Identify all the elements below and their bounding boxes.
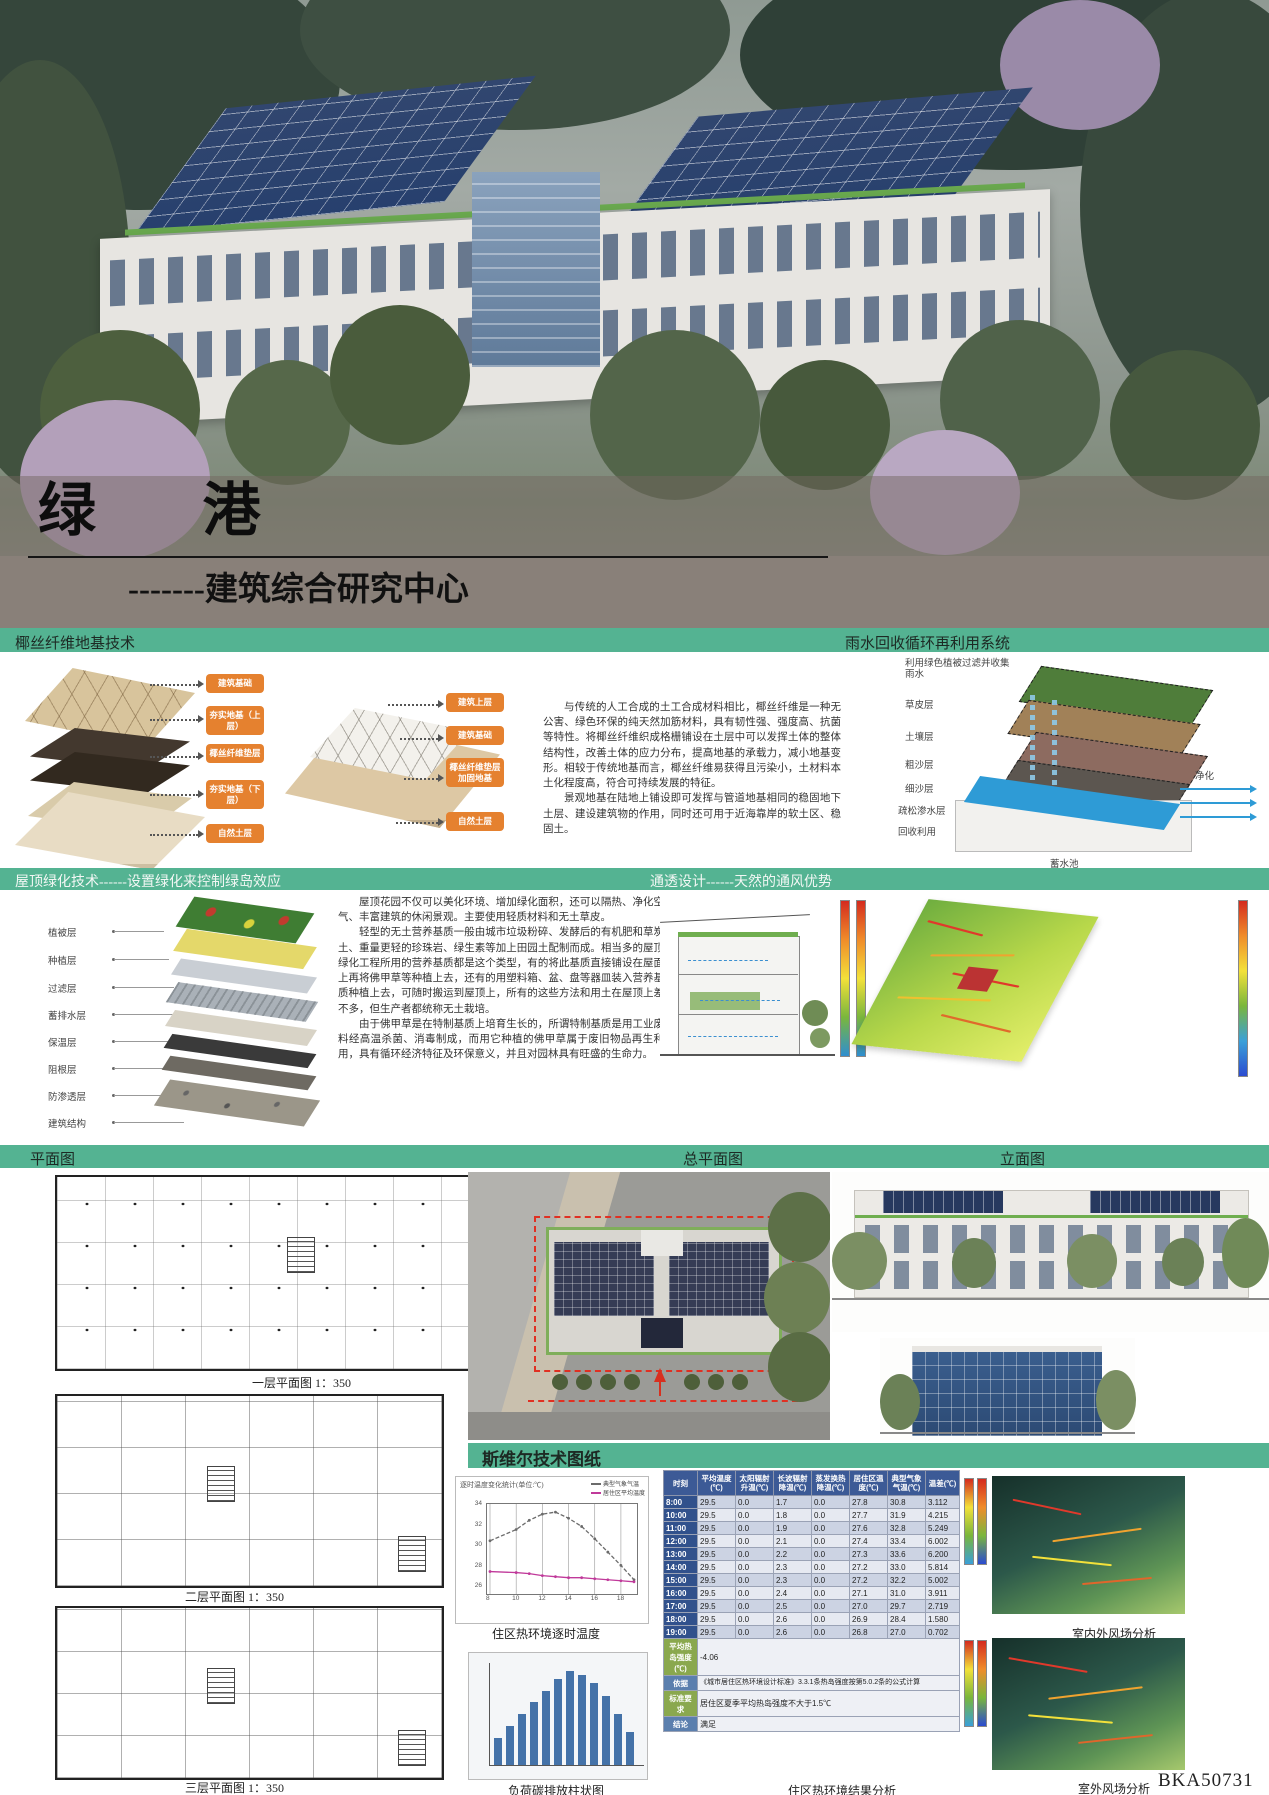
thermal-line-chart-plot [486, 1503, 638, 1595]
leader-line [114, 959, 169, 960]
value-cell: 33.0 [888, 1561, 926, 1574]
summary-value-cell: 《城市居住区热环境设计标准》3.3.1条热岛强度按第5.0.2条的公式计算 [698, 1676, 960, 1691]
value-cell: 2.4 [774, 1587, 812, 1600]
layer-label: 夯实地基（上层） [206, 706, 264, 735]
bar [626, 1732, 634, 1765]
dotted-arrow-icon [396, 822, 438, 824]
flow-arrow [1180, 802, 1250, 804]
column-header: 时刻 [664, 1471, 698, 1496]
airflow-arrow [688, 960, 768, 961]
tree [768, 1192, 830, 1262]
value-cell: 2.1 [774, 1535, 812, 1548]
time-cell: 17:00 [664, 1600, 698, 1613]
value-cell: 31.0 [888, 1587, 926, 1600]
dotted-arrow-icon [438, 734, 444, 742]
table-body: 8:0029.50.01.70.027.830.83.11210:0029.50… [664, 1496, 960, 1732]
roof-paragraphs: 屋顶花园不仅可以美化环境、增加绿化面积，还可以隔热、净化空气、丰富建筑的休闲景观… [338, 895, 664, 1062]
summary-label-cell: 结论 [664, 1717, 698, 1732]
layer-label: 建筑基础 [206, 674, 264, 693]
band-rainwater-title: 雨水回收循环再利用系统 [845, 632, 1010, 653]
x-tick-label: 16 [591, 1595, 598, 1602]
time-cell: 11:00 [664, 1522, 698, 1535]
thermal-table: 时刻平均温度(℃)太阳辐射升温(℃)长波辐射降温(℃)蒸发换热降温(℃)居住区温… [663, 1470, 960, 1732]
bush [552, 1374, 568, 1390]
dotted-arrow-icon [198, 752, 204, 760]
plan-caption-2: 二层平面图 1：350 [185, 1588, 284, 1605]
value-cell: 2.6 [774, 1626, 812, 1639]
value-cell: 29.5 [698, 1600, 736, 1613]
value-cell: 0.0 [736, 1613, 774, 1626]
summary-value-cell: -4.06 [698, 1639, 960, 1676]
board-id: BKA50731 [1158, 1770, 1254, 1792]
value-cell: 0.0 [736, 1600, 774, 1613]
tree [810, 1028, 830, 1048]
dotted-arrow-icon [198, 680, 204, 688]
dotted-arrow-icon [400, 738, 438, 740]
value-cell: 0.0 [812, 1509, 850, 1522]
value-cell: 0.0 [736, 1548, 774, 1561]
leader-line [114, 1122, 184, 1123]
dotted-arrow-icon [404, 778, 438, 780]
band-ventilation-title: 通透设计------天然的通风优势 [650, 871, 832, 891]
section-elevation-drawing [660, 896, 835, 1081]
value-cell: 28.4 [888, 1613, 926, 1626]
value-cell: 0.0 [812, 1626, 850, 1639]
bar [578, 1675, 586, 1765]
green-roof-strip [678, 932, 798, 937]
tree [1222, 1218, 1269, 1288]
value-cell: 1.9 [774, 1522, 812, 1535]
elevation-drawing-1 [832, 1172, 1269, 1332]
value-cell: 1.8 [774, 1509, 812, 1522]
time-cell: 12:00 [664, 1535, 698, 1548]
value-cell: 0.702 [926, 1626, 960, 1639]
roof-layer-label: 建筑结构 [48, 1116, 86, 1130]
value-cell: 29.5 [698, 1626, 736, 1639]
bar [590, 1683, 598, 1765]
value-cell: 1.7 [774, 1496, 812, 1509]
band-foundation-title: 椰丝纤维地基技术 [15, 632, 135, 653]
tree [952, 1238, 996, 1288]
value-cell: 0.0 [736, 1561, 774, 1574]
bar [554, 1679, 562, 1765]
rain-layer-label: 草皮层 [905, 697, 934, 711]
value-cell: 2.6 [774, 1613, 812, 1626]
value-cell: 2.719 [926, 1600, 960, 1613]
line-chart-xlabels: 81012141618 [486, 1595, 636, 1605]
y-tick-label: 30 [475, 1541, 482, 1548]
bush [684, 1374, 700, 1390]
rainwater-note: 利用绿色植被过滤并收集雨水 [905, 658, 1015, 681]
value-cell: 5.249 [926, 1522, 960, 1535]
roof-layer-label: 阻根层 [48, 1062, 77, 1076]
column-header: 平均温度(℃) [698, 1471, 736, 1496]
time-cell: 15:00 [664, 1574, 698, 1587]
stair-symbol [207, 1668, 235, 1704]
carbon-bar-chart [468, 1652, 648, 1780]
tree [768, 1332, 830, 1402]
table-row: 11:0029.50.01.90.027.632.85.249 [664, 1522, 960, 1535]
bar [506, 1726, 514, 1765]
value-cell: 29.5 [698, 1613, 736, 1626]
time-cell: 10:00 [664, 1509, 698, 1522]
value-cell: 0.0 [812, 1600, 850, 1613]
value-cell: 29.5 [698, 1522, 736, 1535]
table-row: 10:0029.50.01.80.027.731.94.215 [664, 1509, 960, 1522]
flow-streak [1028, 1714, 1113, 1723]
road [468, 1412, 830, 1440]
north-arrow-icon [654, 1368, 666, 1382]
value-cell: 27.4 [850, 1535, 888, 1548]
foundation-paragraphs: 与传统的人工合成的土工合成材料相比，椰丝纤维是一种无公害、绿色环保的纯天然加筋材… [543, 700, 841, 837]
palm-tree [590, 330, 760, 500]
value-cell: 27.6 [850, 1522, 888, 1535]
glass-atrium [472, 172, 600, 367]
stair-symbol [207, 1466, 235, 1502]
rain-layer-label: 细沙层 [905, 781, 934, 795]
value-cell: 32.8 [888, 1522, 926, 1535]
roof-paragraph-3: 由于佛甲草是在特制基质上培育生长的，所谓特制基质是用工业废料经高温杀菌、消毒制成… [338, 1017, 664, 1063]
value-cell: 27.0 [850, 1600, 888, 1613]
line-chart-legend: 典型气象气温居住区平均温度 [591, 1479, 645, 1497]
bar-chart-caption: 负荷碳排放柱状图 [508, 1782, 604, 1795]
value-cell: 29.5 [698, 1548, 736, 1561]
table-summary-row: 结论满足 [664, 1717, 960, 1732]
value-cell: 0.0 [812, 1561, 850, 1574]
building-footprint [957, 967, 999, 992]
value-cell: 29.5 [698, 1587, 736, 1600]
time-cell: 13:00 [664, 1548, 698, 1561]
table-row: 17:0029.50.02.50.027.029.72.719 [664, 1600, 960, 1613]
value-cell: 0.0 [736, 1522, 774, 1535]
roof-paragraph-1: 屋顶花园不仅可以美化环境、增加绿化面积，还可以隔热、净化空气、丰富建筑的休闲景观… [338, 895, 664, 925]
line-chart-ylabels: 3432302826 [464, 1499, 484, 1597]
ground-line [660, 1054, 835, 1056]
roof-layer-label: 植被层 [48, 925, 77, 939]
value-cell: 32.2 [888, 1574, 926, 1587]
table-row: 14:0029.50.02.30.027.233.05.814 [664, 1561, 960, 1574]
tree [764, 1262, 830, 1334]
value-cell: 29.5 [698, 1535, 736, 1548]
dotted-arrow-icon [150, 756, 198, 758]
table-caption: 住区热环境结果分析 [788, 1782, 896, 1795]
title-underline [28, 556, 828, 558]
table-summary-row: 依据《城市居住区热环境设计标准》3.3.1条热岛强度按第5.0.2条的公式计算 [664, 1676, 960, 1691]
dotted-arrow-icon [150, 834, 198, 836]
thermal-table-wrap: 时刻平均温度(℃)太阳辐射升温(℃)长波辐射降温(℃)蒸发换热降温(℃)居住区温… [663, 1470, 959, 1732]
dotted-arrow-icon [198, 715, 204, 723]
y-tick-label: 26 [475, 1582, 482, 1589]
time-cell: 19:00 [664, 1626, 698, 1639]
foundation-paragraph-1: 与传统的人工合成的土工合成材料相比，椰丝纤维是一种无公害、绿色环保的纯天然加筋材… [543, 700, 841, 791]
solar-parapet [883, 1191, 1003, 1213]
layer-label: 建筑基础 [446, 726, 504, 745]
time-cell: 16:00 [664, 1587, 698, 1600]
layer-label: 椰丝纤维垫层加固地基 [446, 758, 504, 787]
y-tick-label: 32 [475, 1521, 482, 1528]
band-site-plan-title: 总平面图 [683, 1148, 743, 1169]
legend-entry: 典型气象气温 [591, 1479, 645, 1488]
purify-label: 净化 [1195, 768, 1214, 782]
value-cell: 2.3 [774, 1561, 812, 1574]
palm-tree [760, 360, 890, 490]
floor-plan-3 [55, 1606, 444, 1780]
roof-layer-label: 保温层 [48, 1035, 77, 1049]
band-siwei-title: 斯维尔技术图纸 [482, 1445, 601, 1470]
section-band-plans [0, 1145, 1269, 1168]
value-cell: 27.8 [850, 1496, 888, 1509]
dotted-arrow-icon [438, 700, 444, 708]
site-plan-image [468, 1172, 830, 1440]
section-band-foundation [0, 628, 1269, 652]
value-cell: 3.911 [926, 1587, 960, 1600]
column-header: 温差(℃) [926, 1471, 960, 1496]
value-cell: 31.9 [888, 1509, 926, 1522]
table-head: 时刻平均温度(℃)太阳辐射升温(℃)长波辐射降温(℃)蒸发换热降温(℃)居住区温… [664, 1471, 960, 1496]
airflow-arrow [688, 1036, 778, 1037]
roof-layer-label: 防渗透层 [48, 1089, 86, 1103]
table-header-row: 时刻平均温度(℃)太阳辐射升温(℃)长波辐射降温(℃)蒸发换热降温(℃)居住区温… [664, 1471, 960, 1496]
dotted-arrow-icon [150, 794, 198, 796]
value-cell: 27.1 [850, 1587, 888, 1600]
value-cell: 5.814 [926, 1561, 960, 1574]
value-cell: 0.0 [812, 1522, 850, 1535]
bar [518, 1714, 526, 1765]
dotted-arrow-icon [438, 818, 444, 826]
plan-caption-3: 三层平面图 1：350 [185, 1779, 284, 1795]
floor-plan-2 [55, 1394, 444, 1588]
summary-value-cell: 满足 [698, 1717, 960, 1732]
y-tick-label: 34 [475, 1500, 482, 1507]
tree [1162, 1238, 1204, 1286]
bush [732, 1374, 748, 1390]
flow-streak [1048, 1686, 1143, 1700]
airflow-arrow [700, 1000, 780, 1001]
flow-arrow [1180, 788, 1250, 790]
value-cell: 29.5 [698, 1574, 736, 1587]
wind-caption-bottom: 室外风场分析 [1078, 1780, 1150, 1795]
table-row: 8:0029.50.01.70.027.830.83.112 [664, 1496, 960, 1509]
line-chart-caption: 住区热环境逐时温度 [492, 1625, 600, 1642]
site-boundary [528, 1400, 798, 1402]
value-cell: 0.0 [812, 1548, 850, 1561]
dotted-arrow-icon [198, 830, 204, 838]
cfd-airflow-image [851, 899, 1098, 1062]
value-cell: 29.5 [698, 1509, 736, 1522]
value-cell: 1.580 [926, 1613, 960, 1626]
value-cell: 29.5 [698, 1496, 736, 1509]
value-cell: 33.6 [888, 1548, 926, 1561]
north-arrow-stem [659, 1382, 661, 1396]
flow-streak [897, 996, 991, 1001]
column-header: 居住区温度(℃) [850, 1471, 888, 1496]
ground-line [832, 1298, 1269, 1300]
flow-streak [1078, 1734, 1153, 1744]
wind-analysis-image-top [992, 1476, 1185, 1614]
band-plan-title: 平面图 [30, 1148, 75, 1169]
value-cell: 0.0 [736, 1574, 774, 1587]
value-cell: 6.200 [926, 1548, 960, 1561]
table-summary-row: 标准要求居住区夏季平均热岛强度不大于1.5℃ [664, 1691, 960, 1717]
layer-label: 建筑上层 [446, 693, 504, 712]
flow-arrow [1250, 799, 1257, 807]
legend-entry: 居住区平均温度 [591, 1488, 645, 1497]
value-cell: 0.0 [736, 1626, 774, 1639]
flow-streak [1052, 1528, 1141, 1543]
x-tick-label: 10 [512, 1595, 519, 1602]
layer-label: 椰丝纤维垫层 [206, 744, 264, 763]
bush [600, 1374, 616, 1390]
flow-streak [927, 920, 983, 937]
wind-colorbar [977, 1640, 987, 1727]
x-tick-label: 14 [565, 1595, 572, 1602]
wind-colorbar [964, 1640, 974, 1727]
roof-layer-label: 蓄排水层 [48, 1008, 86, 1022]
table-row: 18:0029.50.02.60.026.928.41.580 [664, 1613, 960, 1626]
wind-colorbar [964, 1478, 974, 1565]
flow-streak [930, 954, 1015, 956]
wind-analysis-image-bottom [992, 1638, 1185, 1770]
time-cell: 18:00 [664, 1613, 698, 1626]
value-cell: 2.5 [774, 1600, 812, 1613]
ground-line [880, 1432, 1135, 1434]
flow-streak [941, 1014, 1012, 1033]
column-header: 蒸发换热降温(℃) [812, 1471, 850, 1496]
time-cell: 14:00 [664, 1561, 698, 1574]
y-tick-label: 28 [475, 1562, 482, 1569]
value-cell: 29.5 [698, 1561, 736, 1574]
rain-layer-label: 粗沙层 [905, 757, 934, 771]
summary-label-cell: 依据 [664, 1676, 698, 1691]
temperature-colorbar [840, 900, 850, 1057]
flow-arrow [1180, 816, 1250, 818]
x-tick-label: 8 [486, 1595, 490, 1602]
layer-label: 夯实地基（下层） [206, 780, 264, 809]
flow-streak [1008, 1657, 1087, 1673]
table-row: 16:0029.50.02.40.027.131.03.911 [664, 1587, 960, 1600]
rain-layer-label: 土壤层 [905, 729, 934, 743]
roof-layer-label: 种植层 [48, 953, 77, 967]
value-cell: 6.002 [926, 1535, 960, 1548]
value-cell: 0.0 [812, 1496, 850, 1509]
bush [624, 1374, 640, 1390]
leader-line [114, 1014, 174, 1015]
bar [566, 1671, 574, 1765]
column-header: 太阳辐射升温(℃) [736, 1471, 774, 1496]
value-cell: 27.3 [850, 1548, 888, 1561]
value-cell: 26.8 [850, 1626, 888, 1639]
wind-colorbar [977, 1478, 987, 1565]
table-row: 12:0029.50.02.10.027.433.46.002 [664, 1535, 960, 1548]
green-terrace-strip [690, 992, 760, 1010]
stair-symbol [398, 1730, 426, 1766]
tree [832, 1232, 887, 1290]
roof-paragraph-2: 轻型的无土营养基质一般由城市垃圾粉碎、发酵后的有机肥和草炭土、重量更轻的珍珠岩、… [338, 925, 664, 1016]
column-header: 典型气象气温(℃) [888, 1471, 926, 1496]
poster-root: 绿 港 -------建筑综合研究中心 椰丝纤维地基技术 雨水回收循环再利用系统… [0, 0, 1269, 1795]
tree [802, 1000, 828, 1026]
value-cell: 29.7 [888, 1600, 926, 1613]
tree [880, 1374, 920, 1430]
dotted-arrow-icon [438, 774, 444, 782]
blossom-tree [1000, 0, 1160, 130]
value-cell: 3.112 [926, 1496, 960, 1509]
value-cell: 30.8 [888, 1496, 926, 1509]
stair-symbol [287, 1237, 315, 1273]
dotted-arrow-icon [150, 684, 198, 686]
value-cell: 2.3 [774, 1574, 812, 1587]
value-cell: 5.002 [926, 1574, 960, 1587]
layer-label: 自然土层 [206, 824, 264, 843]
flow-streak [1082, 1577, 1152, 1585]
flow-arrow [1250, 785, 1257, 793]
value-cell: 2.2 [774, 1548, 812, 1561]
rain-layer-label: 疏松渗水层 [898, 803, 946, 817]
elevation-drawing-2 [880, 1338, 1135, 1440]
value-cell: 27.2 [850, 1574, 888, 1587]
bush [708, 1374, 724, 1390]
glass-facade [912, 1346, 1102, 1436]
bush [576, 1374, 592, 1390]
thermal-line-chart: 逐时温度变化统计(单位:℃) 典型气象气温居住区平均温度 3432302826 … [455, 1476, 649, 1624]
value-cell: 0.0 [736, 1496, 774, 1509]
plan-caption-1: 一层平面图 1：350 [252, 1374, 351, 1391]
leader-line [114, 931, 164, 932]
table-summary-row: 平均热岛强度(℃)-4.06 [664, 1639, 960, 1676]
table-row: 19:0029.50.02.60.026.827.00.702 [664, 1626, 960, 1639]
roof-layer-label: 过滤层 [48, 981, 77, 995]
bar [542, 1691, 550, 1765]
summary-value-cell: 居住区夏季平均热岛强度不大于1.5℃ [698, 1691, 960, 1717]
rain-layer-label: 回收利用 [898, 824, 936, 838]
summary-label-cell: 平均热岛强度(℃) [664, 1639, 698, 1676]
table-row: 13:0029.50.02.20.027.333.66.200 [664, 1548, 960, 1561]
flow-arrow [1250, 813, 1257, 821]
legend-swatch [591, 1483, 601, 1485]
value-cell: 27.7 [850, 1509, 888, 1522]
stair-symbol [398, 1536, 426, 1572]
band-roof-title: 屋顶绿化技术------设置绿化来控制绿岛效应 [15, 871, 281, 891]
poster-title: 绿 港 [38, 482, 307, 540]
leader-line [114, 987, 174, 988]
roof-line [660, 914, 810, 923]
x-tick-label: 12 [538, 1595, 545, 1602]
time-cell: 8:00 [664, 1496, 698, 1509]
bar [530, 1702, 538, 1765]
line-chart-svg [487, 1504, 637, 1594]
legend-swatch [591, 1492, 601, 1494]
tree [1096, 1370, 1136, 1430]
poster-subtitle: -------建筑综合研究中心 [128, 562, 469, 610]
table-row: 15:0029.50.02.30.027.232.25.002 [664, 1574, 960, 1587]
line-chart-title: 逐时温度变化统计(单位:℃) [460, 1480, 544, 1490]
site-boundary [534, 1216, 794, 1372]
x-tick-label: 18 [617, 1595, 624, 1602]
layer-label: 自然土层 [446, 812, 504, 831]
value-cell: 0.0 [812, 1613, 850, 1626]
value-cell: 26.9 [850, 1613, 888, 1626]
value-cell: 27.2 [850, 1561, 888, 1574]
palm-tree [330, 305, 470, 445]
dotted-arrow-icon [198, 790, 204, 798]
value-cell: 0.0 [736, 1509, 774, 1522]
bar [494, 1738, 502, 1765]
tree [1067, 1234, 1117, 1288]
flow-streak [1032, 1556, 1112, 1566]
floor-slab [678, 1014, 798, 1015]
floor-slab [678, 974, 798, 975]
dotted-arrow-icon [150, 719, 198, 721]
